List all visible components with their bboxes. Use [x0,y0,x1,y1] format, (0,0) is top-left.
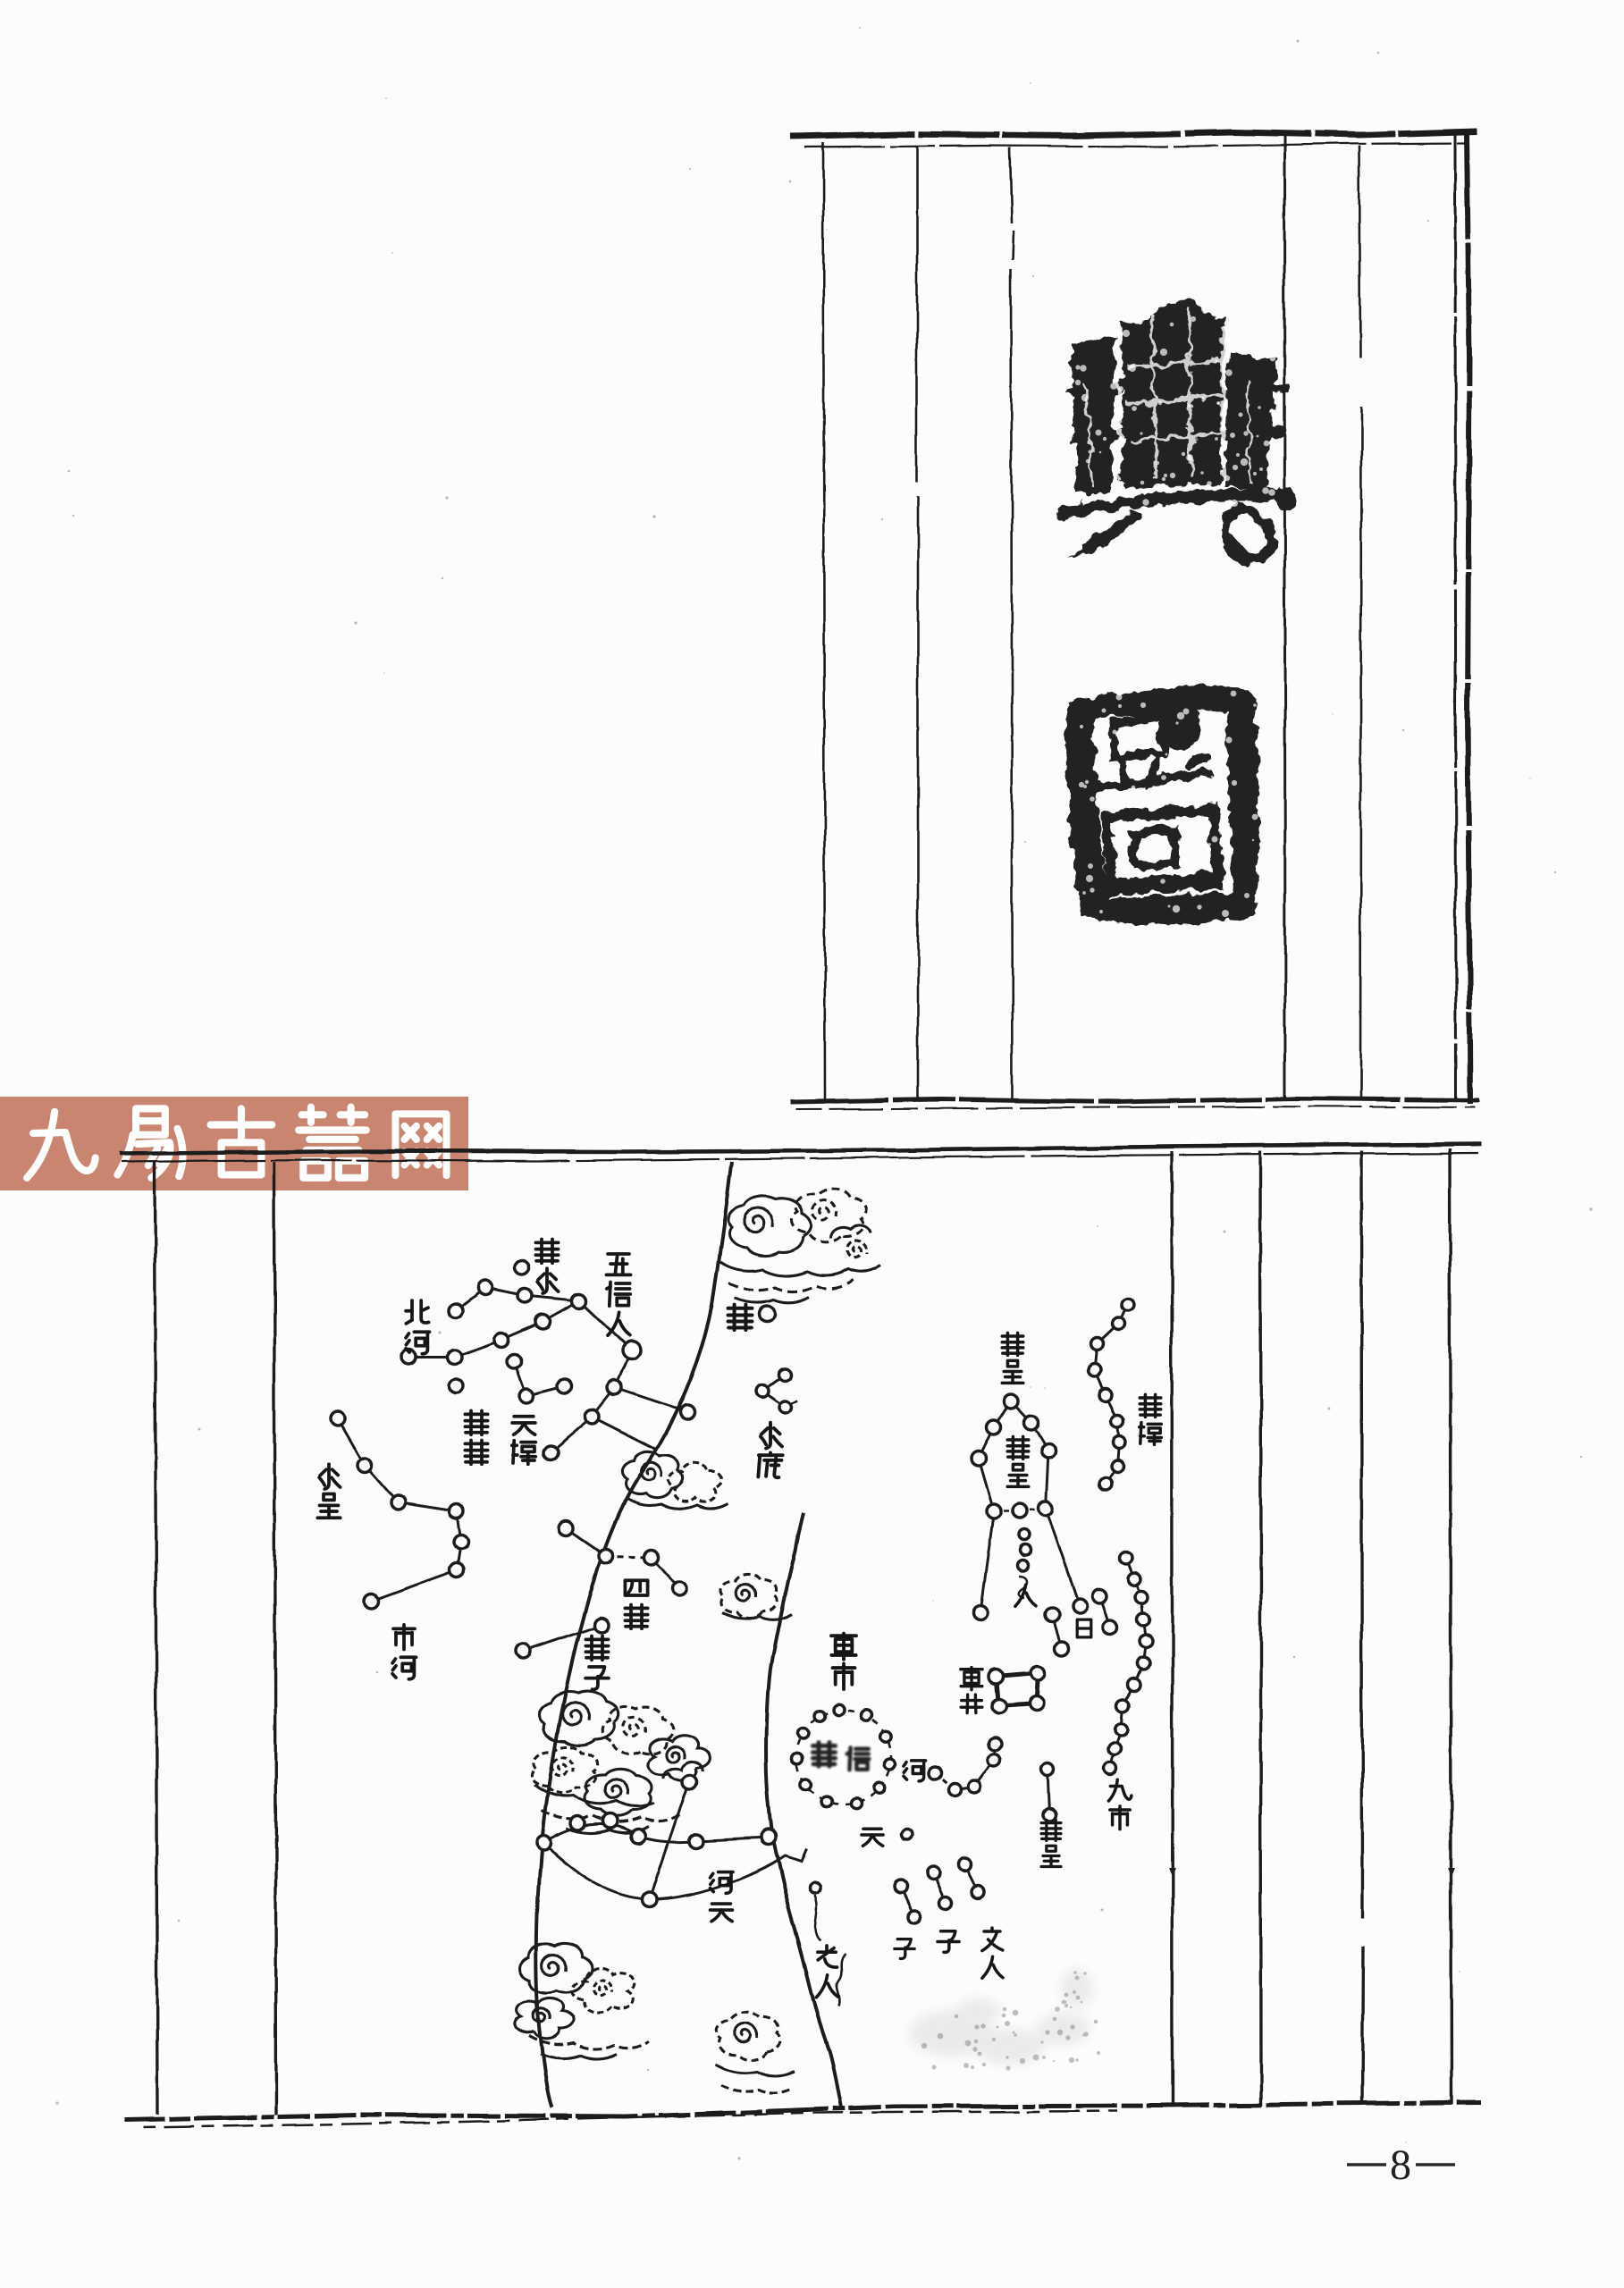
svg-text:8: 8 [1390,2141,1411,2189]
